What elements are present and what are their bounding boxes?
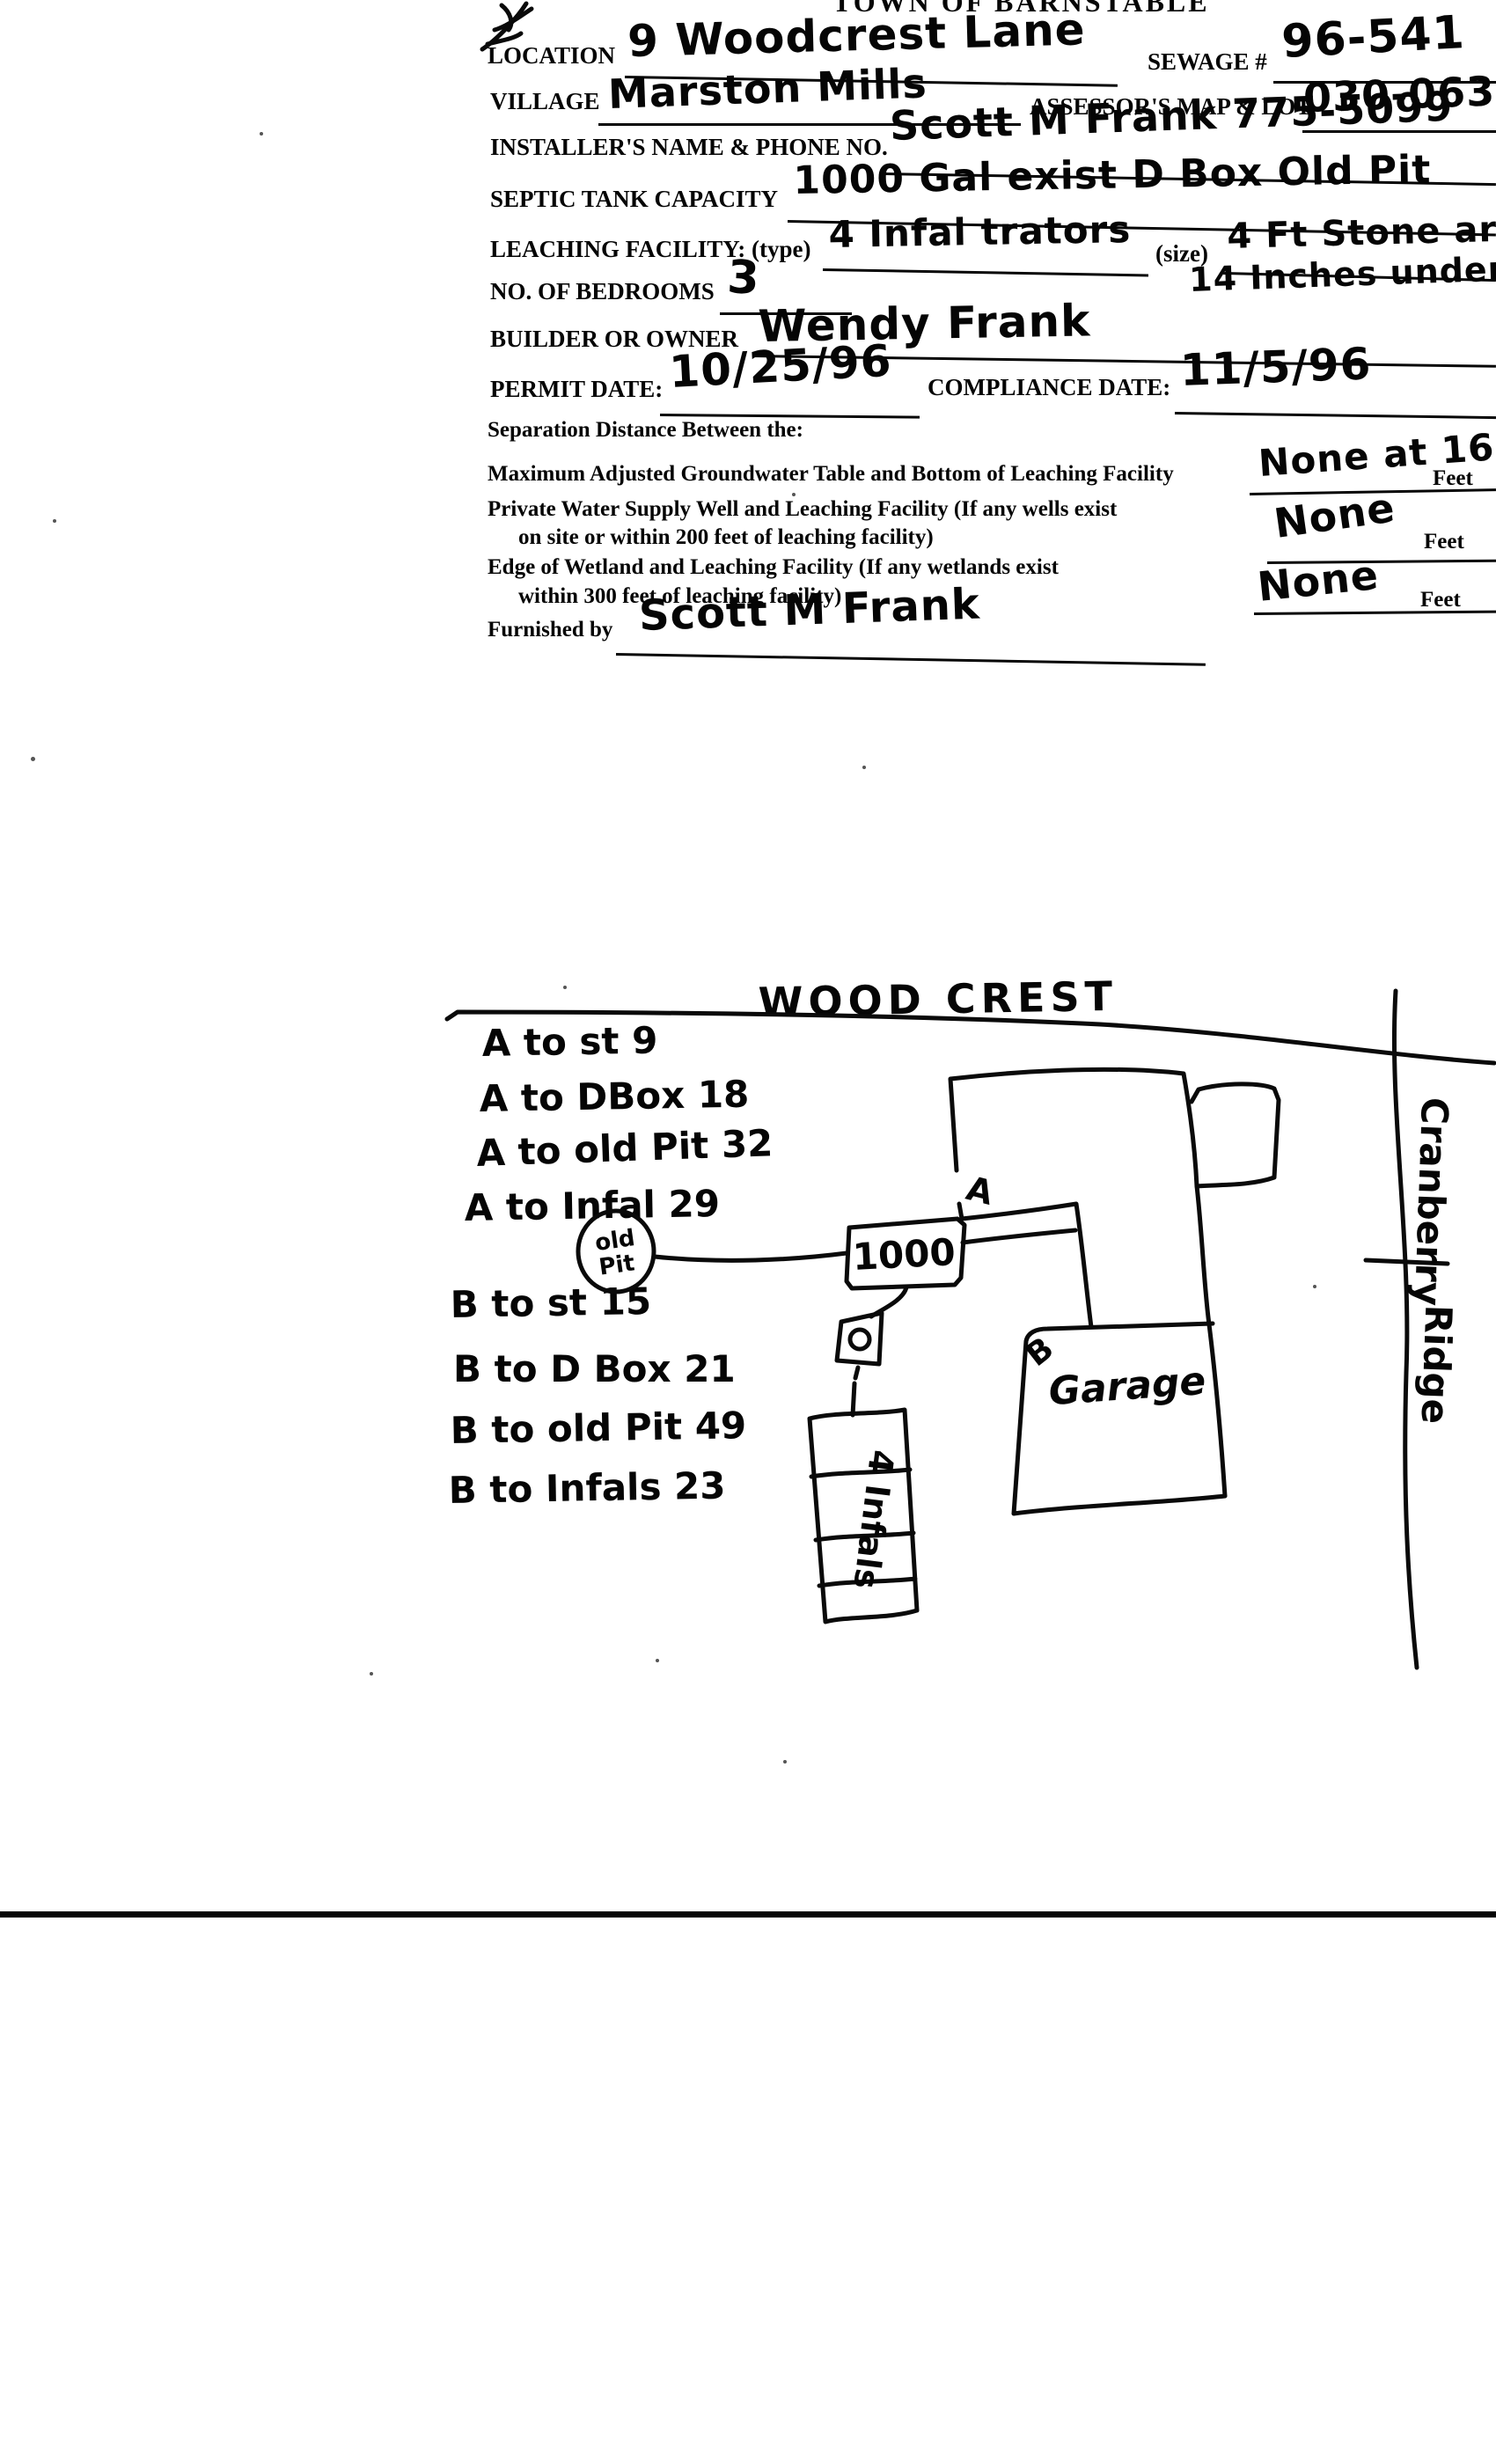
compliance-underline	[1175, 412, 1496, 419]
pipe-dbox-to-infiltrators	[853, 1368, 858, 1415]
separation-row2-label-line2: on site or within 200 feet of leaching f…	[518, 525, 934, 550]
scan-speck	[656, 1659, 659, 1662]
pipe-tank-to-house	[963, 1230, 1075, 1243]
permit-date-value: 10/25/96	[668, 335, 893, 398]
scan-speck	[792, 493, 796, 496]
distance-b-2: B to D Box 21	[453, 1347, 736, 1390]
separation-row3-label-line1: Edge of Wetland and Leaching Facility (I…	[488, 555, 1059, 580]
leaching-type-underline	[823, 268, 1148, 276]
old-pit-label-line2: Pit	[598, 1250, 636, 1280]
compliance-date-label: COMPLIANCE DATE:	[928, 374, 1170, 401]
distance-a-3: A to old Pit 32	[476, 1121, 774, 1175]
cranberry-label: Cranberry	[1406, 1096, 1456, 1307]
septic-capacity-label: SEPTIC TANK CAPACITY	[490, 186, 778, 213]
size-value: 4 Ft Stone around	[1227, 207, 1496, 257]
scanned-septic-permit-page: TOWN OF BARNSTABLE LOCATION 9 Woodcrest …	[0, 0, 1496, 2464]
dbox-inner-circle	[850, 1330, 869, 1349]
bedrooms-label: NO. OF BEDROOMS	[490, 278, 715, 305]
separation-row3-underline	[1254, 611, 1496, 615]
site-sketch: WOOD CREST Cranberry Ridge A to st 9 A t…	[0, 950, 1496, 1681]
ridge-label: Ridge	[1413, 1304, 1461, 1425]
infiltrator-label: 4 Infals	[846, 1448, 901, 1591]
scan-speck	[862, 766, 866, 769]
installer-value: Scott M Frank 775-5099	[889, 83, 1454, 150]
sewage-value: 96-541	[1280, 6, 1466, 69]
location-value: 9 Woodcrest Lane	[627, 4, 1086, 67]
scan-speck	[783, 1760, 787, 1764]
leaching-label: LEACHING FACILITY: (type)	[490, 236, 811, 263]
house-outline	[950, 1069, 1225, 1496]
scan-speck	[1313, 1285, 1316, 1288]
compliance-date-value: 11/5/96	[1179, 338, 1372, 396]
distance-b-3: B to old Pit 49	[450, 1404, 746, 1452]
separation-row1-label: Maximum Adjusted Groundwater Table and B…	[488, 462, 1174, 487]
scan-speck	[563, 986, 567, 989]
point-a-marker: A	[963, 1169, 998, 1213]
separation-row3-unit: Feet	[1420, 588, 1461, 612]
separation-row2-unit: Feet	[1424, 530, 1464, 554]
scan-speck	[370, 1672, 373, 1676]
village-label: VILLAGE	[490, 88, 600, 115]
dbox-symbol	[837, 1313, 882, 1364]
garage-label: Garage	[1047, 1359, 1207, 1414]
distance-b-4: B to Infals 23	[448, 1464, 726, 1512]
scan-speck	[260, 132, 263, 136]
furnished-by-label: Furnished by	[488, 618, 612, 642]
separation-heading: Separation Distance Between the:	[488, 418, 803, 443]
sewage-label: SEWAGE #	[1148, 48, 1267, 76]
separation-row2-label-line1: Private Water Supply Well and Leaching F…	[488, 497, 1117, 522]
bedrooms-value: 3	[726, 251, 761, 305]
distance-b-1: B to st 15	[450, 1280, 651, 1326]
size-note-value: 14 Inches under	[1188, 249, 1496, 299]
house-annex-outline	[1192, 1084, 1279, 1186]
separation-row1-unit: Feet	[1433, 466, 1473, 491]
distance-a-2: A to DBox 18	[479, 1073, 749, 1120]
scan-speck	[53, 519, 56, 523]
distance-a-1: A to st 9	[481, 1019, 657, 1065]
pipe-pit-to-tank	[655, 1253, 847, 1260]
furnished-underline	[616, 653, 1206, 666]
separation-row3-value: None	[1255, 551, 1381, 611]
leaching-type-value: 4 Infal trators	[828, 208, 1132, 256]
road-cranberry-line	[1394, 991, 1417, 1668]
village-value: Marston Mills	[607, 59, 928, 118]
location-label: LOCATION	[488, 42, 615, 70]
septic-tank-label: 1000	[852, 1230, 957, 1279]
bottom-divider-line	[0, 1911, 1496, 1918]
scan-speck	[31, 757, 35, 761]
septic-capacity-value: 1000 Gal exist D Box Old Pit	[793, 147, 1432, 203]
permit-date-label: PERMIT DATE:	[490, 376, 663, 403]
